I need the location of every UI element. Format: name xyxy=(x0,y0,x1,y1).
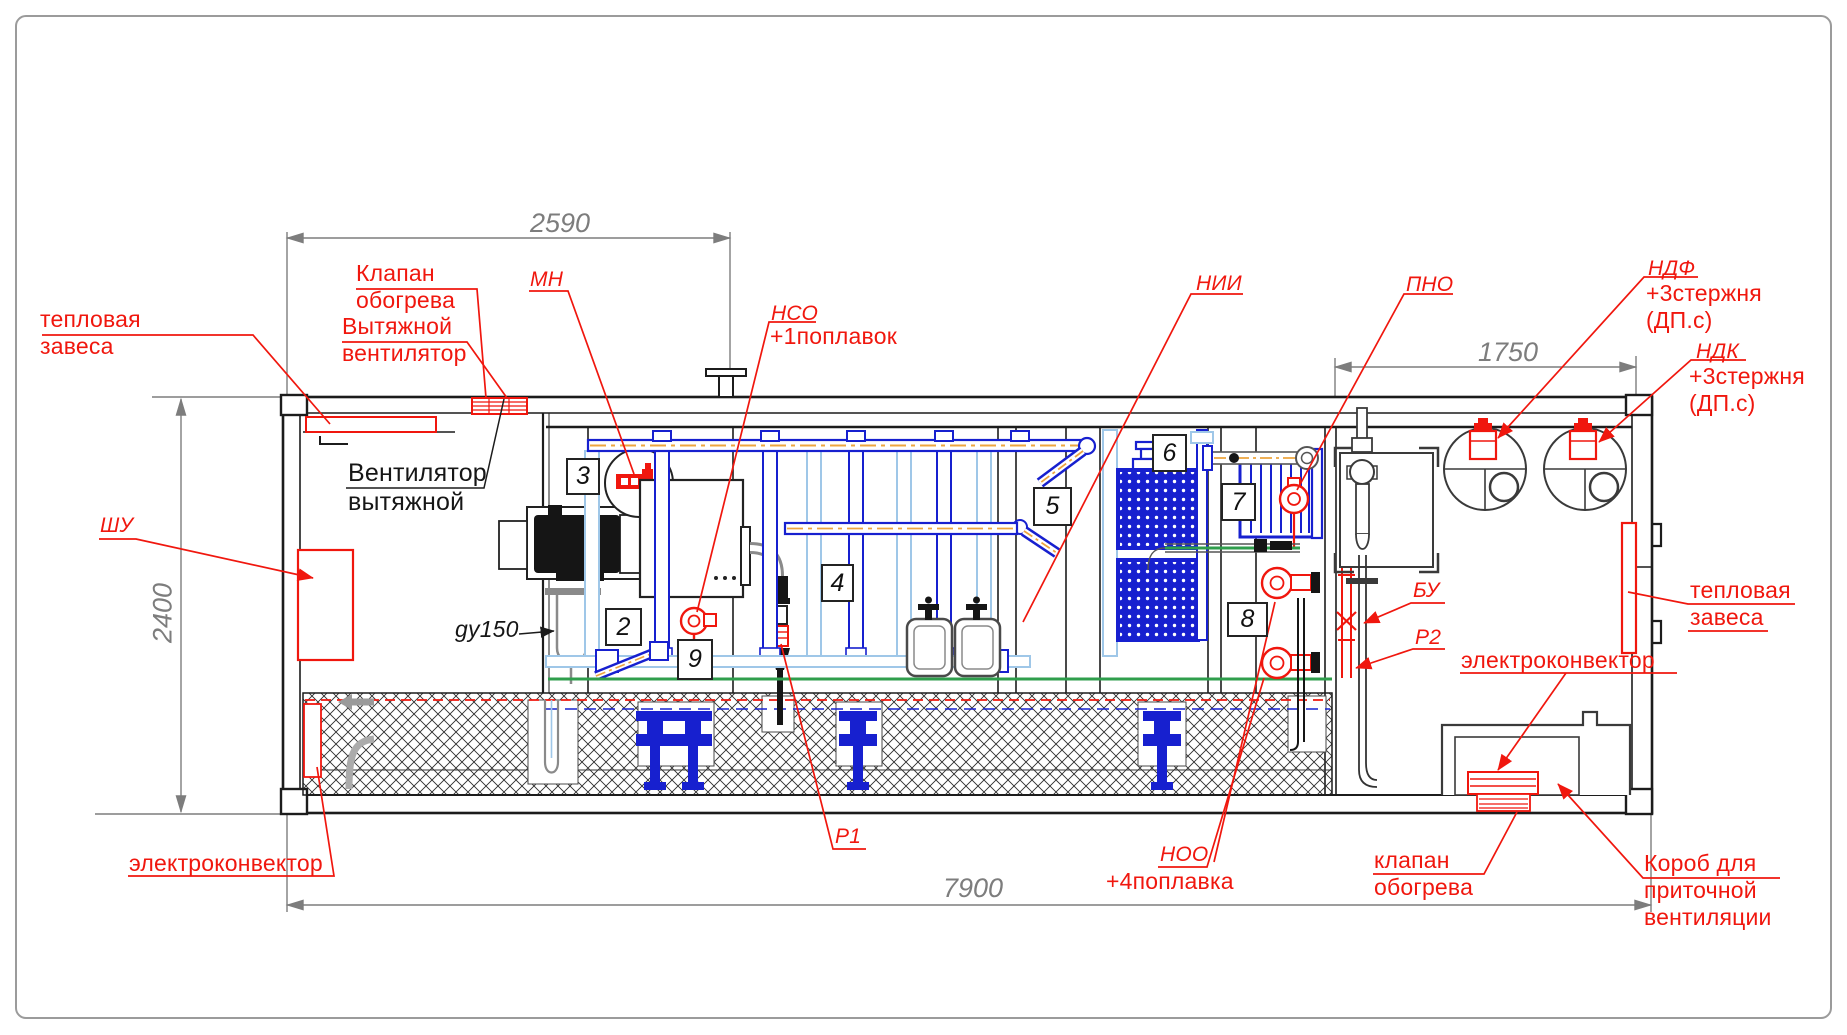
label-thermal-curtain-left: тепловая завеса xyxy=(40,306,141,360)
label-nso-note: +1поплавок xyxy=(770,323,897,350)
pos-9: 9 xyxy=(677,639,713,680)
label-noo: НОО xyxy=(1160,841,1208,868)
label-bu: БУ xyxy=(1413,577,1439,604)
pos-7: 7 xyxy=(1221,483,1256,521)
label-mn: МН xyxy=(530,266,563,293)
pos-6: 6 xyxy=(1152,434,1187,472)
schematic-canvas xyxy=(0,0,1847,1035)
pos-5: 5 xyxy=(1033,487,1072,526)
electroconvector-left-symbol xyxy=(304,704,321,777)
dim-2590: 2590 xyxy=(530,208,590,239)
label-electroconvector-left: электроконвектор xyxy=(129,850,323,877)
pos-3: 3 xyxy=(566,458,600,495)
label-heating-valve-top: Клапан обогрева xyxy=(356,260,455,314)
label-gy150: gy150 xyxy=(455,616,519,643)
roof-vent-pipe xyxy=(706,369,746,397)
door-handle-lower xyxy=(1652,621,1661,643)
label-exhaust-fan-black: Вентилятор вытяжной xyxy=(348,459,487,517)
door-handle-upper xyxy=(1652,524,1661,546)
label-exhaust-fan-red: Вытяжной вентилятор xyxy=(342,313,467,367)
pos-2: 2 xyxy=(605,608,642,646)
label-r2: Р2 xyxy=(1415,624,1441,651)
electroconvector-right-symbol xyxy=(1468,772,1538,794)
label-p1: Р1 xyxy=(835,823,861,850)
roof-heating-valve-fan xyxy=(472,398,527,414)
dim-1750: 1750 xyxy=(1478,337,1538,368)
label-shu: ШУ xyxy=(100,512,133,539)
label-ndf-note: +3стержня (ДП.с) xyxy=(1646,280,1762,334)
label-heating-valve-bottom: клапан обогрева xyxy=(1374,847,1473,901)
pos-8: 8 xyxy=(1227,602,1268,637)
label-ndk: НДК xyxy=(1696,338,1739,365)
label-electroconvector-right: электроконвектор xyxy=(1461,647,1655,674)
dim-7900: 7900 xyxy=(943,873,1003,904)
label-pno: ПНО xyxy=(1406,271,1453,298)
label-thermal-curtain-right: тепловая завеса xyxy=(1690,577,1791,631)
label-ndk-note: +3стержня (ДП.с) xyxy=(1689,363,1805,417)
shu-cabinet-symbol xyxy=(298,550,353,660)
pos-4: 4 xyxy=(821,564,854,602)
drawing-page: тепловая завеса Клапан обогрева Вытяжной… xyxy=(0,0,1847,1035)
label-noo-note: +4поплавка xyxy=(1106,868,1234,895)
dim-2400: 2400 xyxy=(148,583,179,643)
label-supply-vent-duct: Короб для приточной вентиляции xyxy=(1644,850,1772,931)
thermal-curtain-right-symbol xyxy=(1622,523,1636,653)
label-ndf: НДФ xyxy=(1648,255,1695,282)
label-nii: НИИ xyxy=(1196,270,1242,297)
